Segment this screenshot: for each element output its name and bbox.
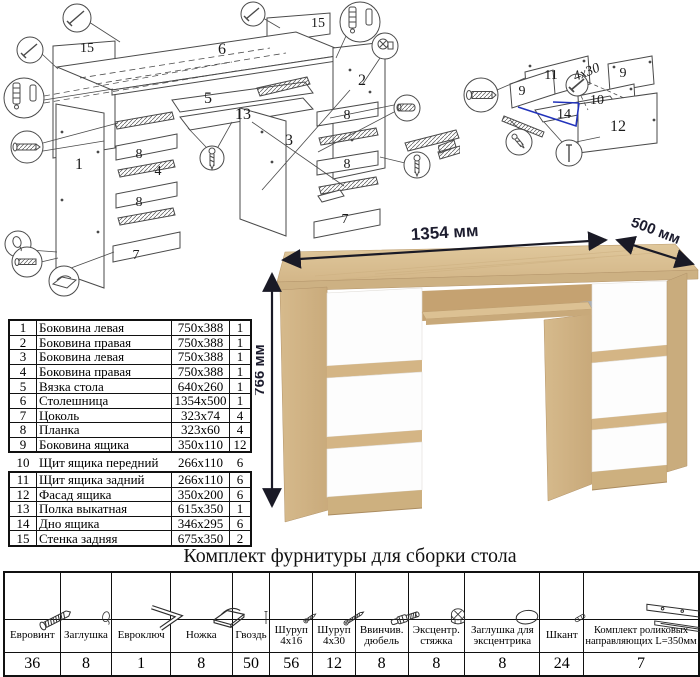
- bar-planka: [116, 182, 177, 208]
- part-number: 3: [9, 350, 37, 365]
- part-qty: 6: [230, 487, 252, 502]
- hardware-table: ЕвровинтЗаглушкаЕвроключНожкаГвоздьШуруп…: [3, 571, 700, 677]
- parts-row: 6Столешница1354x5001: [9, 393, 251, 408]
- part-qty: 1: [230, 335, 252, 350]
- svg-text:2: 2: [358, 72, 366, 89]
- part-number: 12: [9, 487, 37, 502]
- parts-table: 1Боковина левая750x38812Боковина правая7…: [8, 319, 252, 547]
- parts-row: 5Вязка стола640x2601: [9, 379, 251, 394]
- hardware-qty: 7: [584, 653, 699, 677]
- parts-row: 3Боковина левая750x3881: [9, 350, 251, 365]
- part-number: 14: [9, 516, 37, 531]
- drawer-front: [327, 288, 422, 366]
- part-size: 615x350: [172, 502, 230, 517]
- eurovint-icon: [4, 572, 60, 620]
- svg-text:10: 10: [590, 93, 604, 108]
- part-name: Полка выкатная: [37, 502, 172, 517]
- hardware-qty: 1: [112, 653, 171, 677]
- slide-rail: [118, 208, 175, 225]
- drawer-front: [327, 372, 422, 437]
- part-name: Щит ящика передний: [37, 454, 172, 470]
- part-size: 350x200: [172, 487, 230, 502]
- parts-row: 8Планка323x604: [9, 423, 251, 438]
- svg-text:7: 7: [133, 248, 140, 263]
- part-qty: 1: [230, 350, 252, 365]
- part-size: 750x388: [172, 320, 230, 335]
- part-name: Щит ящика задний: [37, 472, 172, 487]
- callout-dowel-sleeve: [340, 2, 380, 42]
- exploded-diagram-drawer: 11 9 9 10 14 12 4x30: [438, 40, 700, 220]
- hardware-qty: 12: [313, 653, 356, 677]
- dimension-depth: 500 мм: [629, 218, 683, 248]
- part-name: Цоколь: [37, 408, 172, 423]
- callout-screw: [404, 152, 430, 178]
- part-size: 350x110: [172, 437, 230, 452]
- part-qty: 4: [230, 423, 252, 438]
- part-name: Планка: [37, 423, 172, 438]
- callout-screw: [506, 129, 532, 155]
- parts-row: 4Боковина правая750x3881: [9, 364, 251, 379]
- svg-text:8: 8: [136, 147, 143, 162]
- drawer-front: [327, 442, 422, 497]
- hardware-qty: 24: [540, 653, 584, 677]
- slide-rail: [118, 160, 175, 177]
- svg-text:8: 8: [344, 157, 351, 172]
- slide-rail-fragment: [438, 140, 456, 153]
- svg-text:9: 9: [519, 84, 526, 99]
- part-number: 4: [9, 364, 37, 379]
- part-name: Боковина правая: [37, 364, 172, 379]
- dimension-height: 766 мм: [255, 344, 268, 395]
- svg-text:9: 9: [620, 66, 627, 81]
- slide-rail: [319, 177, 378, 194]
- part-size: 266x110: [172, 472, 230, 487]
- hardware-qty: 8: [465, 653, 540, 677]
- parts-table-block: 1Боковина левая750x38812Боковина правая7…: [8, 319, 252, 453]
- left-pedestal-side: [280, 287, 332, 522]
- svg-text:12: 12: [610, 118, 626, 135]
- part-name: Вязка стола: [37, 379, 172, 394]
- part-qty: 6: [230, 472, 252, 487]
- svg-text:1: 1: [75, 156, 83, 173]
- svg-text:6: 6: [218, 41, 226, 58]
- part-size: 1354x500: [172, 393, 230, 408]
- parts-row: 11Щит ящика задний266x1106: [9, 472, 251, 487]
- callout-screw: [200, 146, 224, 170]
- part-qty: 6: [230, 516, 252, 531]
- hardware-qty: 56: [270, 653, 313, 677]
- parts-row: 10Щит ящика передний266x1106: [9, 454, 251, 470]
- svg-text:3: 3: [285, 132, 293, 149]
- part-name: Столешница: [37, 393, 172, 408]
- parts-table-block: 11Щит ящика задний266x110612Фасад ящика3…: [8, 471, 252, 547]
- part-size: 323x74: [172, 408, 230, 423]
- hardware-qty: 8: [60, 653, 112, 677]
- dimension-width: 1354 мм: [410, 221, 479, 244]
- part-size: 750x388: [172, 364, 230, 379]
- drawer-front: [592, 423, 667, 472]
- svg-text:14: 14: [557, 107, 571, 122]
- part-name: Дно ящика: [37, 516, 172, 531]
- callout-dowel-sleeve: [4, 78, 44, 118]
- part-number: 9: [9, 437, 37, 452]
- bar-planka: [116, 134, 177, 160]
- svg-text:4: 4: [155, 164, 162, 179]
- parts-row: 7Цоколь323x744: [9, 408, 251, 423]
- part-name: Боковина правая: [37, 335, 172, 350]
- hardware-qty: 50: [232, 653, 270, 677]
- parts-row: 14Дно ящика346x2956: [9, 516, 251, 531]
- drawer-front: [592, 356, 667, 419]
- svg-text:11: 11: [544, 68, 557, 83]
- assembly-instruction-sheet: 15 6 15 5 13 1 3 2 8 4 8 7 8 8 7: [0, 0, 700, 677]
- part-qty: 1: [230, 320, 252, 335]
- dowel-icon: [397, 104, 415, 111]
- desk-render: 1354 мм 500 мм 766 мм: [255, 218, 700, 553]
- hardware-kit-title: Комплект фурнитуры для сборки стола: [0, 545, 700, 568]
- part-number: 13: [9, 502, 37, 517]
- part-qty: 1: [230, 379, 252, 394]
- part-qty: 6: [230, 454, 252, 470]
- part-qty: 2: [230, 531, 252, 546]
- svg-text:8: 8: [344, 108, 351, 123]
- part-number: 15: [9, 531, 37, 546]
- part-number: 5: [9, 379, 37, 394]
- callout-nail: [241, 2, 265, 26]
- parts-row: 1Боковина левая750x3881: [9, 320, 251, 335]
- callout-nail: [63, 4, 91, 32]
- svg-text:5: 5: [204, 90, 212, 107]
- part-qty: 1: [230, 364, 252, 379]
- part-size: 640x260: [172, 379, 230, 394]
- rail-kit-icon: [584, 572, 699, 620]
- right-side-sliver: [667, 273, 687, 472]
- hardware-qty: 8: [355, 653, 408, 677]
- part-qty: 1: [230, 393, 252, 408]
- part-name: Стенка задняя: [37, 531, 172, 546]
- parts-table-row-bare: 10Щит ящика передний266x1106: [8, 453, 252, 471]
- hardware-qty: 8: [170, 653, 232, 677]
- part-number: 11: [9, 472, 37, 487]
- part-size: 346x295: [172, 516, 230, 531]
- part-number: 1: [9, 320, 37, 335]
- part-qty: 1: [230, 502, 252, 517]
- hardware-qty: 8: [408, 653, 465, 677]
- part-qty: 4: [230, 408, 252, 423]
- bar-plinth: [113, 232, 180, 262]
- part-number: 8: [9, 423, 37, 438]
- part-size: 750x388: [172, 335, 230, 350]
- part-number: 10: [9, 454, 37, 470]
- part-size: 750x388: [172, 350, 230, 365]
- part-name: Фасад ящика: [37, 487, 172, 502]
- svg-text:8: 8: [136, 195, 143, 210]
- part-name: Боковина левая: [37, 320, 172, 335]
- part-name: Боковина левая: [37, 350, 172, 365]
- parts-row: 12Фасад ящика350x2006: [9, 487, 251, 502]
- part-qty: 12: [230, 437, 252, 452]
- part-size: 266x110: [172, 454, 230, 470]
- drawer-front: [592, 281, 667, 352]
- part-number: 2: [9, 335, 37, 350]
- part-size: 675x350: [172, 531, 230, 546]
- parts-row: 15Стенка задняя675x3502: [9, 531, 251, 546]
- part-number: 6: [9, 393, 37, 408]
- parts-row: 9Боковина ящика350x11012: [9, 437, 251, 452]
- part-name: Боковина ящика: [37, 437, 172, 452]
- slide-rail: [115, 112, 174, 129]
- svg-text:15: 15: [311, 16, 325, 31]
- panel-side-mid: [240, 108, 286, 236]
- parts-row: 13Полка выкатная615x3501: [9, 502, 251, 517]
- svg-text:13: 13: [235, 106, 251, 123]
- svg-text:15: 15: [80, 41, 94, 56]
- hardware-qty: 36: [4, 653, 60, 677]
- part-number: 7: [9, 408, 37, 423]
- right-pedestal-side: [544, 314, 592, 501]
- parts-row: 2Боковина правая750x3881: [9, 335, 251, 350]
- part-size: 323x60: [172, 423, 230, 438]
